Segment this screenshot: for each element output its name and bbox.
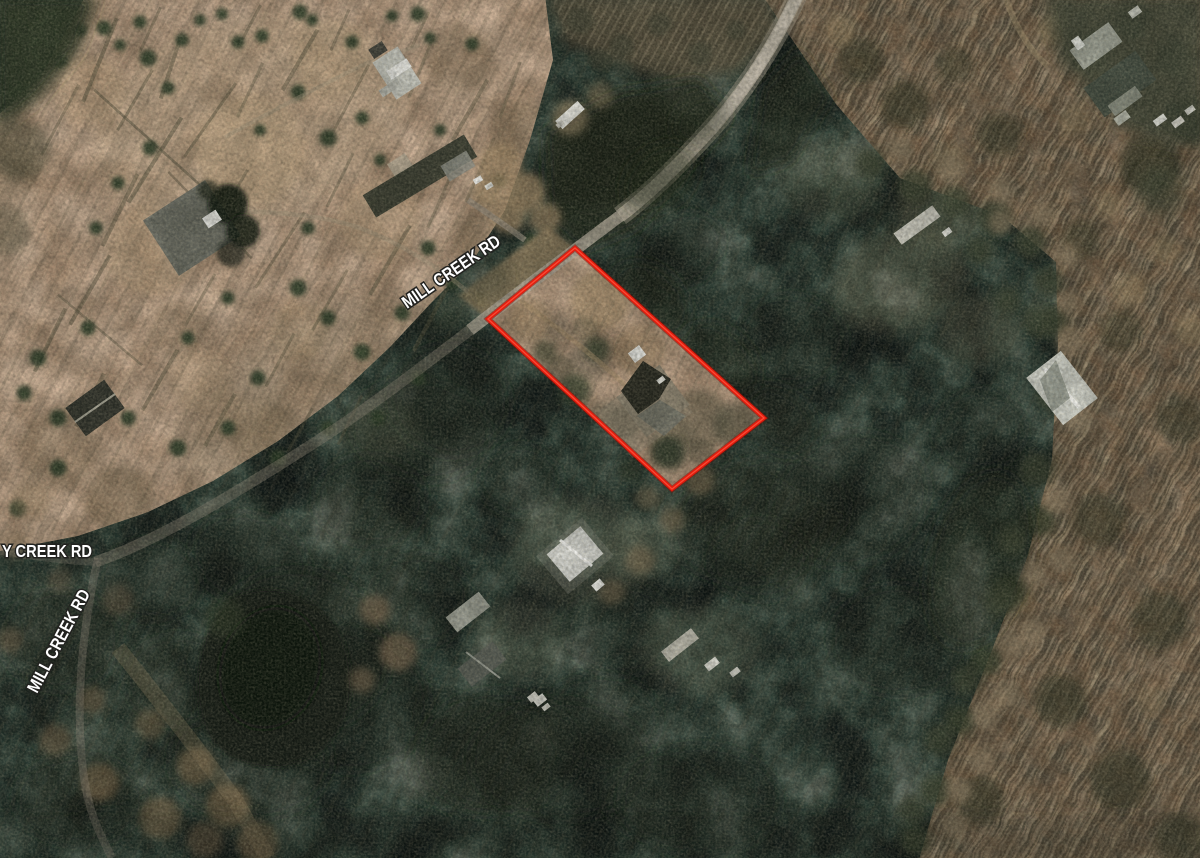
svg-text:Y CREEK RD: Y CREEK RD — [2, 541, 92, 561]
